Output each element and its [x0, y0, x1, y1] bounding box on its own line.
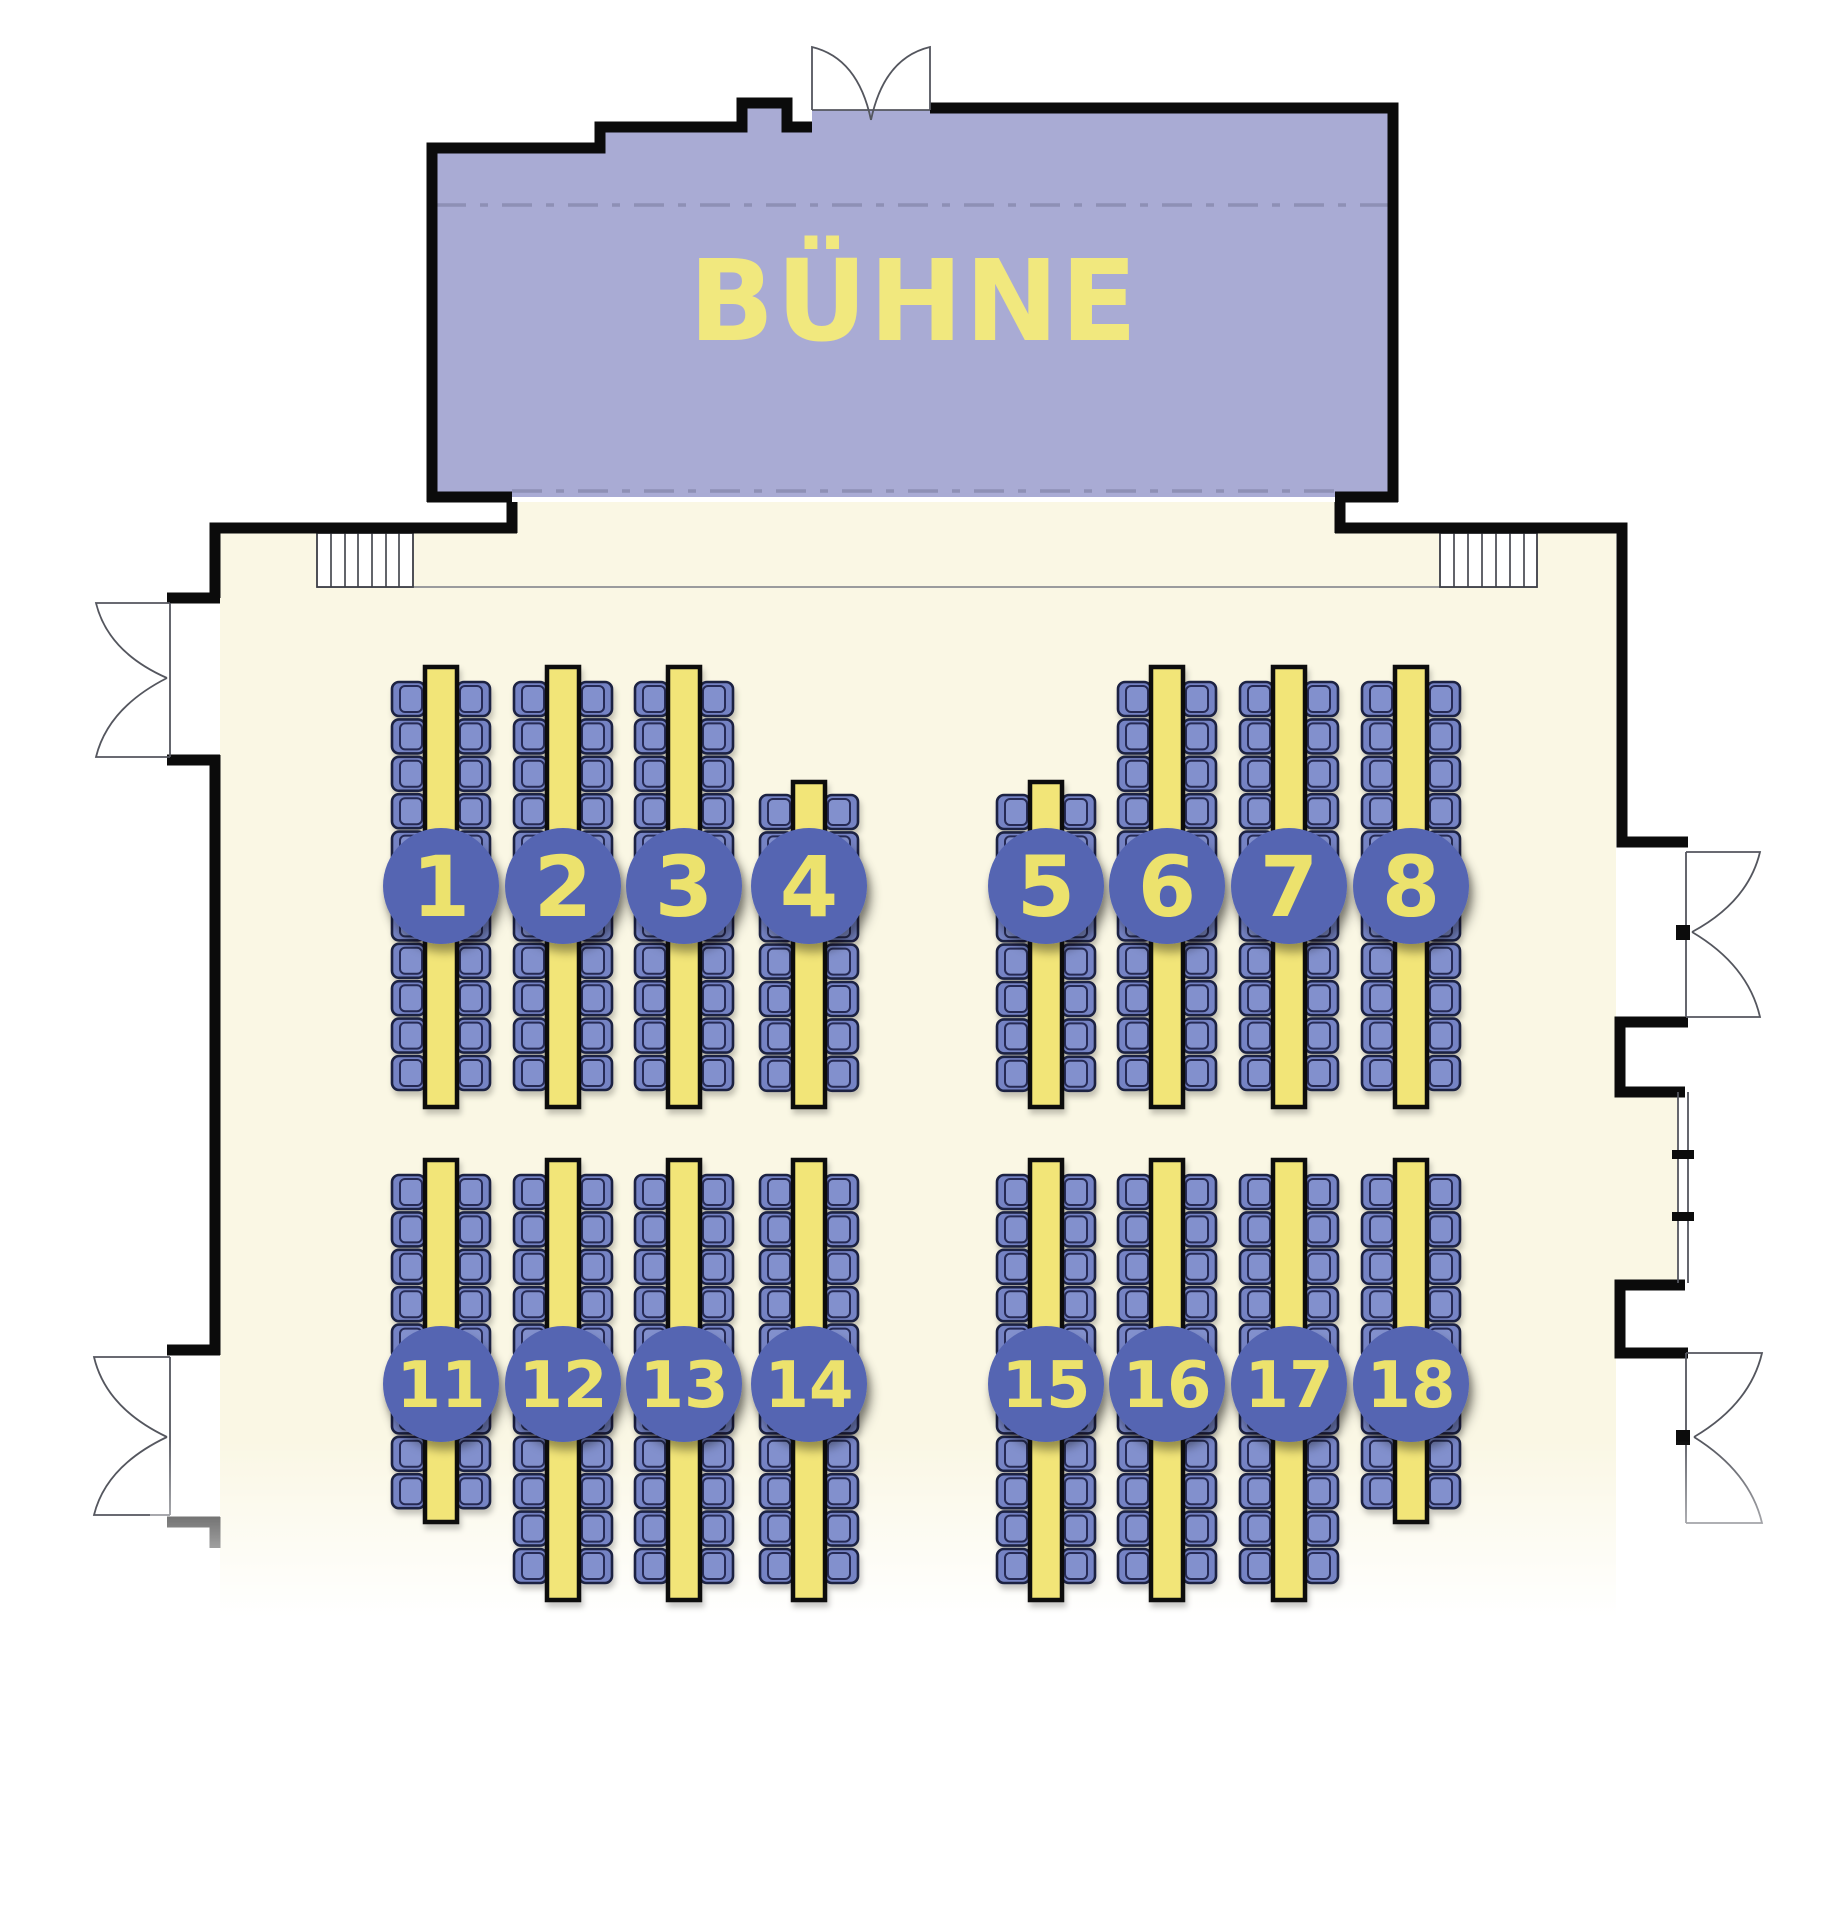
chair-seat	[400, 1216, 422, 1242]
chair-seat	[1430, 798, 1452, 824]
chair-seat	[828, 1216, 850, 1242]
table-badge[interactable]: 5	[988, 828, 1104, 944]
chair-seat	[582, 761, 604, 787]
chair-seat	[1248, 1179, 1270, 1205]
table-number: 7	[1260, 838, 1318, 936]
chair-seat	[768, 1179, 790, 1205]
chair-seat	[1186, 985, 1208, 1011]
chair-seat	[643, 1516, 665, 1542]
chair-seat	[1308, 1478, 1330, 1504]
chair-seat	[1308, 1254, 1330, 1280]
chair-seat	[768, 1216, 790, 1242]
chair-seat	[582, 948, 604, 974]
chair-seat	[1126, 1553, 1148, 1579]
chair-seat	[1308, 1553, 1330, 1579]
chair-seat	[1186, 723, 1208, 749]
chair-seat	[1186, 1516, 1208, 1542]
chair-seat	[1065, 1516, 1087, 1542]
chair-seat	[1308, 948, 1330, 974]
table-group[interactable]: 1	[383, 667, 499, 1107]
chair-seat	[582, 1441, 604, 1467]
table-number: 8	[1382, 838, 1440, 936]
table-group[interactable]: 14	[751, 1160, 867, 1600]
chair-seat	[1186, 761, 1208, 787]
chair-seat	[1308, 723, 1330, 749]
chair-seat	[828, 1516, 850, 1542]
chair-seat	[522, 723, 544, 749]
chair-seat	[1430, 1216, 1452, 1242]
chair-seat	[703, 985, 725, 1011]
chair-seat	[1430, 1060, 1452, 1086]
table-group[interactable]: 16	[1109, 1160, 1225, 1600]
chair-seat	[828, 1441, 850, 1467]
chair-seat	[643, 1023, 665, 1049]
chair-seat	[1005, 1478, 1027, 1504]
chair-seat	[1308, 1291, 1330, 1317]
chair-seat	[522, 985, 544, 1011]
table-group[interactable]: 15	[988, 1160, 1104, 1600]
chair-seat	[1186, 1291, 1208, 1317]
chair-seat	[1126, 1023, 1148, 1049]
chair-seat	[1065, 1061, 1087, 1087]
chair-seat	[1370, 1060, 1392, 1086]
table-badge[interactable]: 11	[383, 1326, 499, 1442]
chair-seat	[1126, 1060, 1148, 1086]
chair-seat	[400, 1254, 422, 1280]
chair-seat	[703, 1441, 725, 1467]
chair-seat	[1186, 1478, 1208, 1504]
chair-seat	[522, 1179, 544, 1205]
chair-seat	[1248, 1441, 1270, 1467]
chair-seat	[1065, 1478, 1087, 1504]
chair-seat	[1248, 1553, 1270, 1579]
chair-seat	[703, 723, 725, 749]
chair-seat	[643, 798, 665, 824]
chair-seat	[582, 723, 604, 749]
chair-seat	[522, 948, 544, 974]
chair-seat	[460, 798, 482, 824]
table-number: 13	[639, 1349, 728, 1423]
table-number: 3	[655, 838, 713, 936]
chair-seat	[1005, 1061, 1027, 1087]
chair-seat	[400, 1179, 422, 1205]
chair-seat	[1308, 1023, 1330, 1049]
chair-seat	[643, 1060, 665, 1086]
chair-seat	[582, 1291, 604, 1317]
chair-seat	[1126, 1254, 1148, 1280]
table-badge[interactable]: 17	[1231, 1326, 1347, 1442]
chair-seat	[1308, 1516, 1330, 1542]
chair-seat	[1248, 985, 1270, 1011]
chair-seat	[1065, 986, 1087, 1012]
chair-seat	[522, 1023, 544, 1049]
chair-seat	[703, 1060, 725, 1086]
chair-seat	[400, 1060, 422, 1086]
chair-seat	[582, 1553, 604, 1579]
chair-seat	[1430, 686, 1452, 712]
chair-seat	[582, 1216, 604, 1242]
chair-seat	[522, 1060, 544, 1086]
chair-seat	[1308, 1216, 1330, 1242]
chair-seat	[522, 1553, 544, 1579]
chair-seat	[400, 1478, 422, 1504]
chair-seat	[460, 761, 482, 787]
chair-seat	[1186, 1441, 1208, 1467]
table-group[interactable]: 8	[1353, 667, 1469, 1107]
chair-seat	[1005, 986, 1027, 1012]
table-group[interactable]: 11	[383, 1160, 499, 1522]
chair-seat	[1005, 1179, 1027, 1205]
chair-seat	[643, 1441, 665, 1467]
chair-seat	[1370, 1291, 1392, 1317]
table-group[interactable]: 2	[505, 667, 621, 1107]
chair-seat	[1248, 686, 1270, 712]
chair-seat	[582, 1478, 604, 1504]
chair-seat	[768, 1478, 790, 1504]
chair-seat	[1126, 798, 1148, 824]
chair-seat	[1430, 1254, 1452, 1280]
stage-label: BÜHNE	[689, 236, 1139, 367]
chair-seat	[522, 798, 544, 824]
seating-floor-plan: BÜHNE 123456	[0, 0, 1845, 1920]
chair-seat	[522, 686, 544, 712]
stage: BÜHNE	[432, 103, 1393, 497]
chair-seat	[1248, 1254, 1270, 1280]
chair-seat	[1370, 985, 1392, 1011]
chair-seat	[1126, 1516, 1148, 1542]
chair-seat	[1248, 1291, 1270, 1317]
table-group[interactable]: 12	[505, 1160, 621, 1600]
chair-seat	[703, 1478, 725, 1504]
table-number: 5	[1017, 838, 1075, 936]
chair-seat	[703, 761, 725, 787]
chair-seat	[1005, 1254, 1027, 1280]
table-number: 14	[764, 1349, 853, 1423]
chair-seat	[1186, 686, 1208, 712]
chair-seat	[1248, 723, 1270, 749]
chair-seat	[1430, 1023, 1452, 1049]
chair-seat	[1005, 949, 1027, 975]
chair-seat	[400, 948, 422, 974]
table-group[interactable]: 18	[1353, 1160, 1469, 1522]
chair-seat	[703, 1179, 725, 1205]
table-number: 1	[412, 838, 470, 936]
stairs-left	[317, 533, 413, 587]
chair-seat	[1248, 1216, 1270, 1242]
chair-seat	[1186, 1216, 1208, 1242]
table-badge[interactable]: 1	[383, 828, 499, 944]
table-group[interactable]: 6	[1109, 667, 1225, 1107]
chair-seat	[1370, 1179, 1392, 1205]
chair-seat	[460, 723, 482, 749]
chair-seat	[768, 1291, 790, 1317]
chair-seat	[400, 686, 422, 712]
chair-seat	[1126, 1441, 1148, 1467]
chair-seat	[400, 1023, 422, 1049]
chair-seat	[1370, 723, 1392, 749]
chair-seat	[1430, 1291, 1452, 1317]
chair-seat	[1005, 799, 1027, 825]
chair-seat	[1308, 761, 1330, 787]
chair-seat	[460, 1441, 482, 1467]
chair-seat	[1065, 1291, 1087, 1317]
chair-seat	[1370, 686, 1392, 712]
chair-seat	[1065, 1179, 1087, 1205]
chair-seat	[1430, 1478, 1452, 1504]
chair-seat	[643, 1179, 665, 1205]
chair-seat	[1370, 1216, 1392, 1242]
chair-seat	[768, 799, 790, 825]
chair-seat	[1430, 1179, 1452, 1205]
chair-seat	[703, 1553, 725, 1579]
chair-seat	[1005, 1553, 1027, 1579]
chair-seat	[1308, 1441, 1330, 1467]
table-group[interactable]: 7	[1231, 667, 1347, 1107]
chair-seat	[1126, 1216, 1148, 1242]
chair-seat	[828, 799, 850, 825]
table-number: 11	[396, 1349, 485, 1423]
chair-seat	[828, 1179, 850, 1205]
chair-seat	[703, 1254, 725, 1280]
chair-seat	[828, 1478, 850, 1504]
chair-seat	[1186, 948, 1208, 974]
stairs-right	[1440, 533, 1537, 587]
chair-seat	[1126, 1179, 1148, 1205]
chair-seat	[768, 1023, 790, 1049]
chair-seat	[1248, 798, 1270, 824]
chair-seat	[768, 1254, 790, 1280]
chair-seat	[1430, 1441, 1452, 1467]
chair-seat	[768, 949, 790, 975]
chair-seat	[643, 1216, 665, 1242]
chair-seat	[768, 1061, 790, 1087]
chair-seat	[828, 1023, 850, 1049]
chair-seat	[522, 1441, 544, 1467]
table-number: 15	[1001, 1349, 1090, 1423]
chair-seat	[1248, 948, 1270, 974]
chair-seat	[522, 1516, 544, 1542]
chair-seat	[1248, 1478, 1270, 1504]
chair-seat	[460, 1216, 482, 1242]
chair-seat	[703, 948, 725, 974]
chair-seat	[460, 686, 482, 712]
table-group[interactable]: 3	[626, 667, 742, 1107]
chair-seat	[1430, 985, 1452, 1011]
chair-seat	[703, 1023, 725, 1049]
chair-seat	[1186, 798, 1208, 824]
chair-seat	[1186, 1023, 1208, 1049]
table-number: 2	[534, 838, 592, 936]
table-group[interactable]: 17	[1231, 1160, 1347, 1600]
chair-seat	[643, 1478, 665, 1504]
chair-seat	[1370, 1023, 1392, 1049]
table-badge[interactable]: 13	[626, 1326, 742, 1442]
chair-seat	[1126, 1478, 1148, 1504]
chair-seat	[582, 1516, 604, 1542]
chair-seat	[1126, 985, 1148, 1011]
chair-seat	[1186, 1553, 1208, 1579]
chair-seat	[1065, 799, 1087, 825]
chair-seat	[1430, 723, 1452, 749]
chair-seat	[460, 948, 482, 974]
chair-seat	[1370, 761, 1392, 787]
chair-seat	[400, 723, 422, 749]
table-badge[interactable]: 3	[626, 828, 742, 944]
chair-seat	[828, 986, 850, 1012]
chair-seat	[1370, 798, 1392, 824]
table-badge[interactable]: 18	[1353, 1326, 1469, 1442]
chair-seat	[582, 1060, 604, 1086]
chair-seat	[643, 948, 665, 974]
chair-seat	[768, 1553, 790, 1579]
chair-seat	[522, 1216, 544, 1242]
table-number: 16	[1122, 1349, 1211, 1423]
chair-seat	[1126, 686, 1148, 712]
chair-seat	[768, 986, 790, 1012]
chair-seat	[703, 1291, 725, 1317]
chair-seat	[1065, 1216, 1087, 1242]
chair-seat	[643, 1254, 665, 1280]
chair-seat	[1065, 1254, 1087, 1280]
table-badge[interactable]: 8	[1353, 828, 1469, 944]
chair-seat	[1248, 1516, 1270, 1542]
chair-seat	[1065, 1441, 1087, 1467]
chair-seat	[828, 1553, 850, 1579]
chair-seat	[522, 1291, 544, 1317]
chair-seat	[460, 1291, 482, 1317]
chair-seat	[643, 1553, 665, 1579]
chair-seat	[460, 1254, 482, 1280]
chair-seat	[400, 761, 422, 787]
chair-seat	[460, 1023, 482, 1049]
chair-seat	[522, 1478, 544, 1504]
chair-seat	[582, 798, 604, 824]
chair-seat	[1248, 1060, 1270, 1086]
chair-seat	[582, 985, 604, 1011]
chair-seat	[460, 985, 482, 1011]
chair-seat	[582, 1179, 604, 1205]
chair-seat	[1005, 1516, 1027, 1542]
chair-seat	[1370, 1441, 1392, 1467]
chair-seat	[828, 1291, 850, 1317]
table-badge[interactable]: 4	[751, 828, 867, 944]
chair-seat	[1370, 948, 1392, 974]
chair-seat	[400, 1291, 422, 1317]
chair-seat	[460, 1478, 482, 1504]
chair-seat	[643, 686, 665, 712]
chair-seat	[1308, 985, 1330, 1011]
chair-seat	[1308, 1179, 1330, 1205]
chair-seat	[1065, 949, 1087, 975]
table-badge[interactable]: 15	[988, 1326, 1104, 1442]
chair-seat	[703, 1216, 725, 1242]
table-number: 12	[518, 1349, 607, 1423]
chair-seat	[643, 1291, 665, 1317]
table-number: 17	[1244, 1349, 1333, 1423]
table-badge[interactable]: 2	[505, 828, 621, 944]
chair-seat	[1186, 1060, 1208, 1086]
chair-seat	[1308, 1060, 1330, 1086]
chair-seat	[1430, 761, 1452, 787]
chair-seat	[582, 1023, 604, 1049]
chair-seat	[1126, 948, 1148, 974]
table-badge[interactable]: 16	[1109, 1326, 1225, 1442]
chair-seat	[828, 1254, 850, 1280]
chair-seat	[400, 1441, 422, 1467]
chair-seat	[643, 761, 665, 787]
chair-seat	[828, 1061, 850, 1087]
chair-seat	[1248, 761, 1270, 787]
chair-seat	[768, 1441, 790, 1467]
chair-seat	[1248, 1023, 1270, 1049]
chair-seat	[828, 949, 850, 975]
chair-seat	[768, 1516, 790, 1542]
chair-seat	[582, 1254, 604, 1280]
chair-seat	[703, 798, 725, 824]
table-number: 6	[1138, 838, 1196, 936]
chair-seat	[1005, 1216, 1027, 1242]
chair-seat	[1186, 1254, 1208, 1280]
table-number: 4	[780, 838, 838, 936]
chair-seat	[460, 1179, 482, 1205]
chair-seat	[582, 686, 604, 712]
chair-seat	[643, 723, 665, 749]
chair-seat	[1005, 1023, 1027, 1049]
chair-seat	[400, 985, 422, 1011]
chair-seat	[522, 1254, 544, 1280]
chair-seat	[1370, 1254, 1392, 1280]
chair-seat	[1065, 1023, 1087, 1049]
table-badge[interactable]: 12	[505, 1326, 621, 1442]
chair-seat	[460, 1060, 482, 1086]
table-badge[interactable]: 6	[1109, 828, 1225, 944]
chair-seat	[643, 985, 665, 1011]
chair-seat	[1308, 798, 1330, 824]
chair-seat	[400, 798, 422, 824]
chair-seat	[522, 761, 544, 787]
chair-seat	[1186, 1179, 1208, 1205]
chair-seat	[1065, 1553, 1087, 1579]
chair-seat	[1370, 1478, 1392, 1504]
chair-seat	[703, 1516, 725, 1542]
chair-seat	[1126, 723, 1148, 749]
chair-seat	[1005, 1291, 1027, 1317]
chair-seat	[1126, 1291, 1148, 1317]
table-badge[interactable]: 7	[1231, 828, 1347, 944]
chair-seat	[703, 686, 725, 712]
table-group[interactable]: 13	[626, 1160, 742, 1600]
chair-seat	[1005, 1441, 1027, 1467]
table-badge[interactable]: 14	[751, 1326, 867, 1442]
chair-seat	[1308, 686, 1330, 712]
chair-seat	[1126, 761, 1148, 787]
chair-seat	[1430, 948, 1452, 974]
table-number: 18	[1366, 1349, 1455, 1423]
